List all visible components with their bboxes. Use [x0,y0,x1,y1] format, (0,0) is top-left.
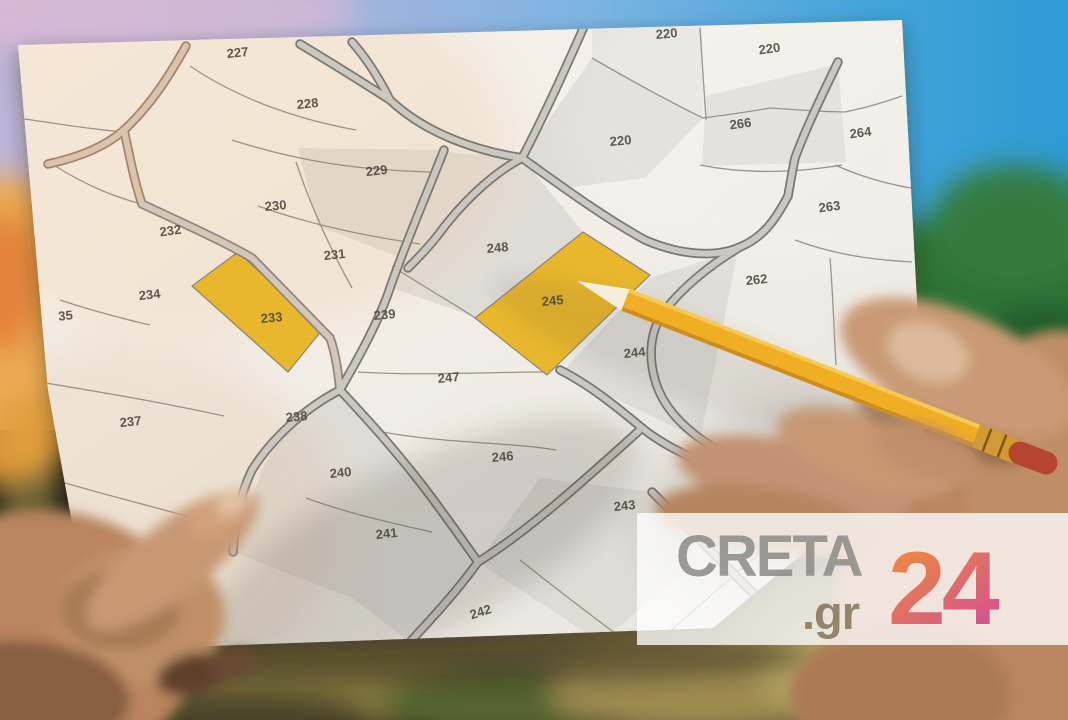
parcel-label: 232 [159,222,183,240]
parcel-label: 35 [58,307,74,323]
watermark-number-text: 24 [888,531,1000,647]
parcel-label: 238 [285,408,308,425]
parcel-label: 239 [373,306,396,323]
watermark-brand-text: CRETA [676,524,863,589]
watermark-logo: CRETA .gr 24 [637,513,1068,647]
news-photo-cadastral-map: 227 228 229 230 232 231 234 35 233 248 2… [0,0,1068,720]
parcel-label: 247 [437,369,460,386]
parcel-label-233: 233 [260,309,283,326]
parcel-label: 220 [655,25,678,42]
watermark-domain-text: .gr [802,586,860,639]
parcel-label: 240 [329,464,352,481]
parcel-label: 237 [119,413,142,430]
parcel-label: 220 [758,40,782,58]
parcel-label: 231 [323,246,346,263]
parcel-label: 263 [818,198,841,216]
parcel-label: 220 [609,132,632,149]
parcel-label: 230 [264,197,287,214]
parcel-label: 228 [296,95,319,112]
parcel-label: 266 [729,115,752,133]
parcel-label: 248 [486,239,509,256]
parcel-label: 234 [138,286,162,303]
parcel-label: 262 [745,271,768,288]
photo-canvas: 227 228 229 230 232 231 234 35 233 248 2… [0,0,1068,720]
parcel-label: 264 [849,124,873,142]
pencil-eraser [1020,453,1046,463]
parcel-label: 229 [365,162,388,179]
parcel-label: 227 [226,44,249,61]
